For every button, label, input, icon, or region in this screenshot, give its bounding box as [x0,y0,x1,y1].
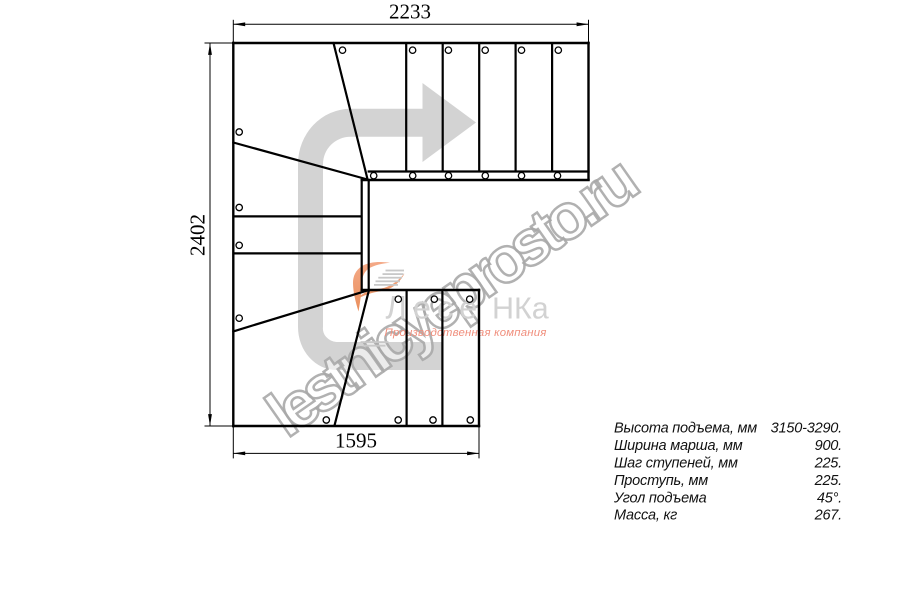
svg-text:Шаг ступеней, мм: Шаг ступеней, мм [614,455,738,471]
svg-text:267.: 267. [814,508,842,524]
svg-text:2402: 2402 [186,214,210,256]
svg-text:1595: 1595 [335,429,377,453]
svg-text:Ширина марша, мм: Ширина марша, мм [614,438,743,454]
svg-text:2233: 2233 [389,0,431,24]
svg-text:225.: 225. [814,455,842,471]
svg-text:900.: 900. [815,438,842,454]
svg-text:225.: 225. [814,473,842,489]
svg-text:Высота подъема, мм: Высота подъема, мм [614,420,757,436]
svg-text:45°.: 45°. [817,490,842,506]
svg-text:НКа: НКа [492,292,549,326]
svg-text:Угол подъема: Угол подъема [613,490,707,506]
svg-text:3150-3290.: 3150-3290. [771,420,842,436]
svg-text:Лесе: Лесе [386,290,484,326]
svg-text:Масса, кг: Масса, кг [614,508,677,524]
svg-text:Производственная компания: Производственная компания [385,327,547,339]
svg-text:Проступь, мм: Проступь, мм [614,473,708,489]
